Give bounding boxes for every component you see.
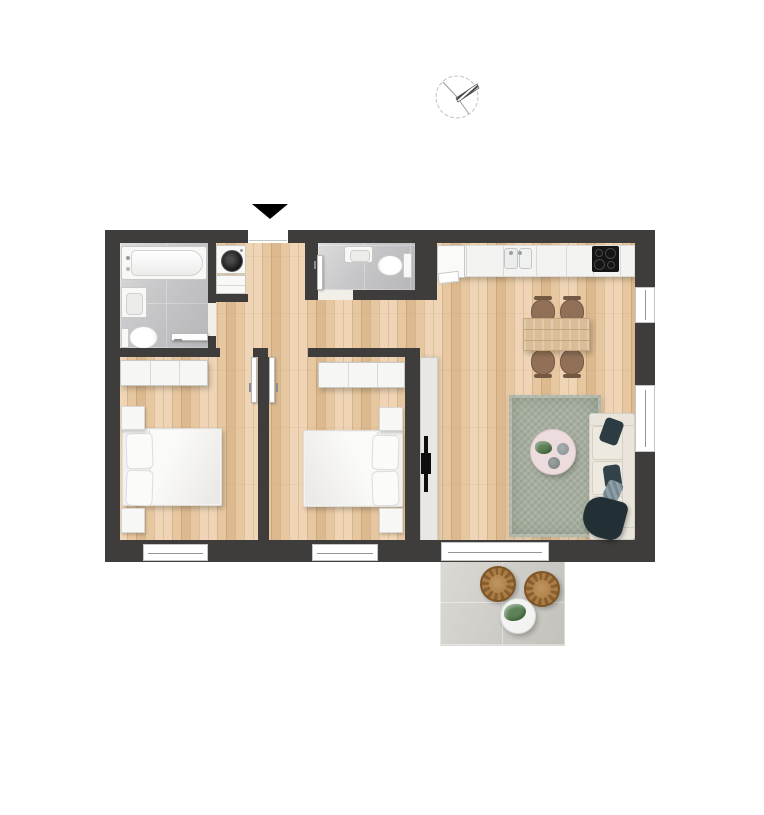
entrance-threshold	[248, 230, 288, 243]
bathtub-faucet	[126, 256, 130, 260]
cabinet-seam	[217, 285, 245, 286]
laundry-cabinet	[216, 275, 246, 294]
window-bottom-2	[312, 544, 378, 561]
terrace-sliding-door	[441, 542, 549, 561]
cooktop	[592, 246, 619, 272]
coffee-table	[530, 429, 576, 475]
bed-pillow	[371, 435, 399, 471]
bed-pillow	[125, 470, 153, 507]
washing-machine-drum	[221, 250, 243, 272]
bathtub-basin	[131, 250, 203, 276]
bedroom1-door-handle	[249, 383, 251, 392]
wc-door-handle	[314, 261, 316, 269]
kitchen-faucet-2	[518, 251, 522, 255]
dining-chair	[560, 349, 584, 375]
window-glass-line	[317, 553, 373, 554]
wall-laundry-niche-bottom	[216, 294, 248, 302]
wall-wc-right	[415, 243, 437, 300]
entrance-arrow-icon	[251, 203, 289, 220]
bathtub-drain	[126, 267, 130, 271]
burner	[605, 248, 616, 259]
wall-hallway-stub	[253, 348, 268, 357]
bathtub	[121, 246, 207, 280]
bedroom2-nightstand	[379, 508, 403, 533]
table-plank-line	[524, 340, 589, 341]
burner	[607, 261, 615, 269]
terrace-plant	[504, 604, 526, 621]
wardrobe-seam	[179, 361, 180, 385]
coffee-table-decor	[557, 443, 569, 455]
kitchen-faucet	[509, 251, 513, 255]
counter-seam	[466, 246, 467, 276]
wall-top-right-segment	[288, 230, 655, 243]
burner	[594, 259, 605, 270]
washing-machine-dial	[240, 249, 243, 252]
floor-plan-canvas	[0, 0, 764, 815]
wc-basin	[344, 246, 373, 263]
wall-wc-bottom-right	[353, 290, 418, 300]
wc-door-leaf	[317, 255, 323, 290]
counter-seam	[620, 246, 621, 276]
wc-basin-bowl	[350, 250, 370, 262]
window-glass-line	[645, 290, 646, 320]
bedroom2-wardrobe	[318, 362, 405, 388]
bed-duvet	[305, 432, 378, 505]
bathroom-toilet-tank	[121, 328, 129, 348]
wall-left	[105, 230, 120, 560]
window-glass-line	[148, 553, 203, 554]
counter-seam	[566, 246, 567, 276]
coffee-table-plant	[535, 441, 552, 454]
door-glass-line	[448, 552, 541, 553]
bedroom1-nightstand	[121, 406, 145, 430]
tv-mount	[421, 453, 431, 474]
entrance-door-line	[249, 240, 287, 241]
wardrobe-seam	[150, 361, 151, 385]
wall-top-left-segment	[105, 230, 248, 243]
wall-hallway-left	[105, 348, 220, 357]
wall-bedroom2-top	[308, 348, 420, 357]
window-bottom-1	[143, 544, 208, 561]
terrace-side-table	[500, 598, 536, 634]
bedroom1-bed	[122, 428, 222, 506]
chair-backrest	[563, 374, 581, 378]
bed-pillow	[125, 433, 153, 470]
wall-bedroom2-right	[405, 357, 420, 540]
bed-duvet	[149, 430, 220, 504]
wc-toilet-tank	[403, 253, 412, 278]
window-right-1	[635, 287, 655, 323]
table-plank-line	[524, 329, 589, 330]
bathroom-door-opening	[208, 303, 216, 336]
bed-pillow	[371, 471, 399, 507]
counter-seam	[536, 246, 537, 276]
washing-machine	[216, 245, 246, 274]
bathroom-toilet-bowl	[129, 326, 158, 349]
bedroom1-wardrobe	[120, 360, 208, 386]
chair-backrest	[563, 296, 581, 300]
burner	[595, 249, 603, 257]
wc-toilet-bowl	[377, 255, 403, 276]
bathroom-vanity-sink	[121, 287, 147, 318]
bedroom2-door-leaf	[269, 357, 275, 403]
terrace-rattan-chair	[480, 566, 516, 602]
window-glass-line	[645, 390, 646, 447]
bedroom2-door-handle	[276, 383, 278, 392]
chair-backrest	[534, 374, 552, 378]
dining-table	[523, 318, 590, 351]
wall-bathroom-right	[208, 243, 216, 303]
tv-sideboard	[420, 357, 438, 542]
wall-bedroom-divider	[258, 357, 269, 540]
coffee-table-decor	[548, 457, 560, 469]
dining-chair	[531, 349, 555, 375]
bedroom1-door-leaf	[251, 357, 257, 403]
bedroom2-nightstand	[379, 407, 403, 431]
window-right-2	[635, 385, 655, 452]
wc-door-opening	[318, 290, 353, 300]
chair-backrest	[534, 296, 552, 300]
wall-wc-bottom-left	[305, 290, 318, 300]
bedroom2-bed	[303, 430, 403, 507]
vanity-basin	[126, 293, 143, 315]
wardrobe-seam	[348, 363, 349, 387]
bedroom1-nightstand	[121, 508, 145, 533]
north-compass-icon	[432, 72, 482, 122]
wardrobe-seam	[377, 363, 378, 387]
bathroom-door-handle	[174, 339, 182, 341]
